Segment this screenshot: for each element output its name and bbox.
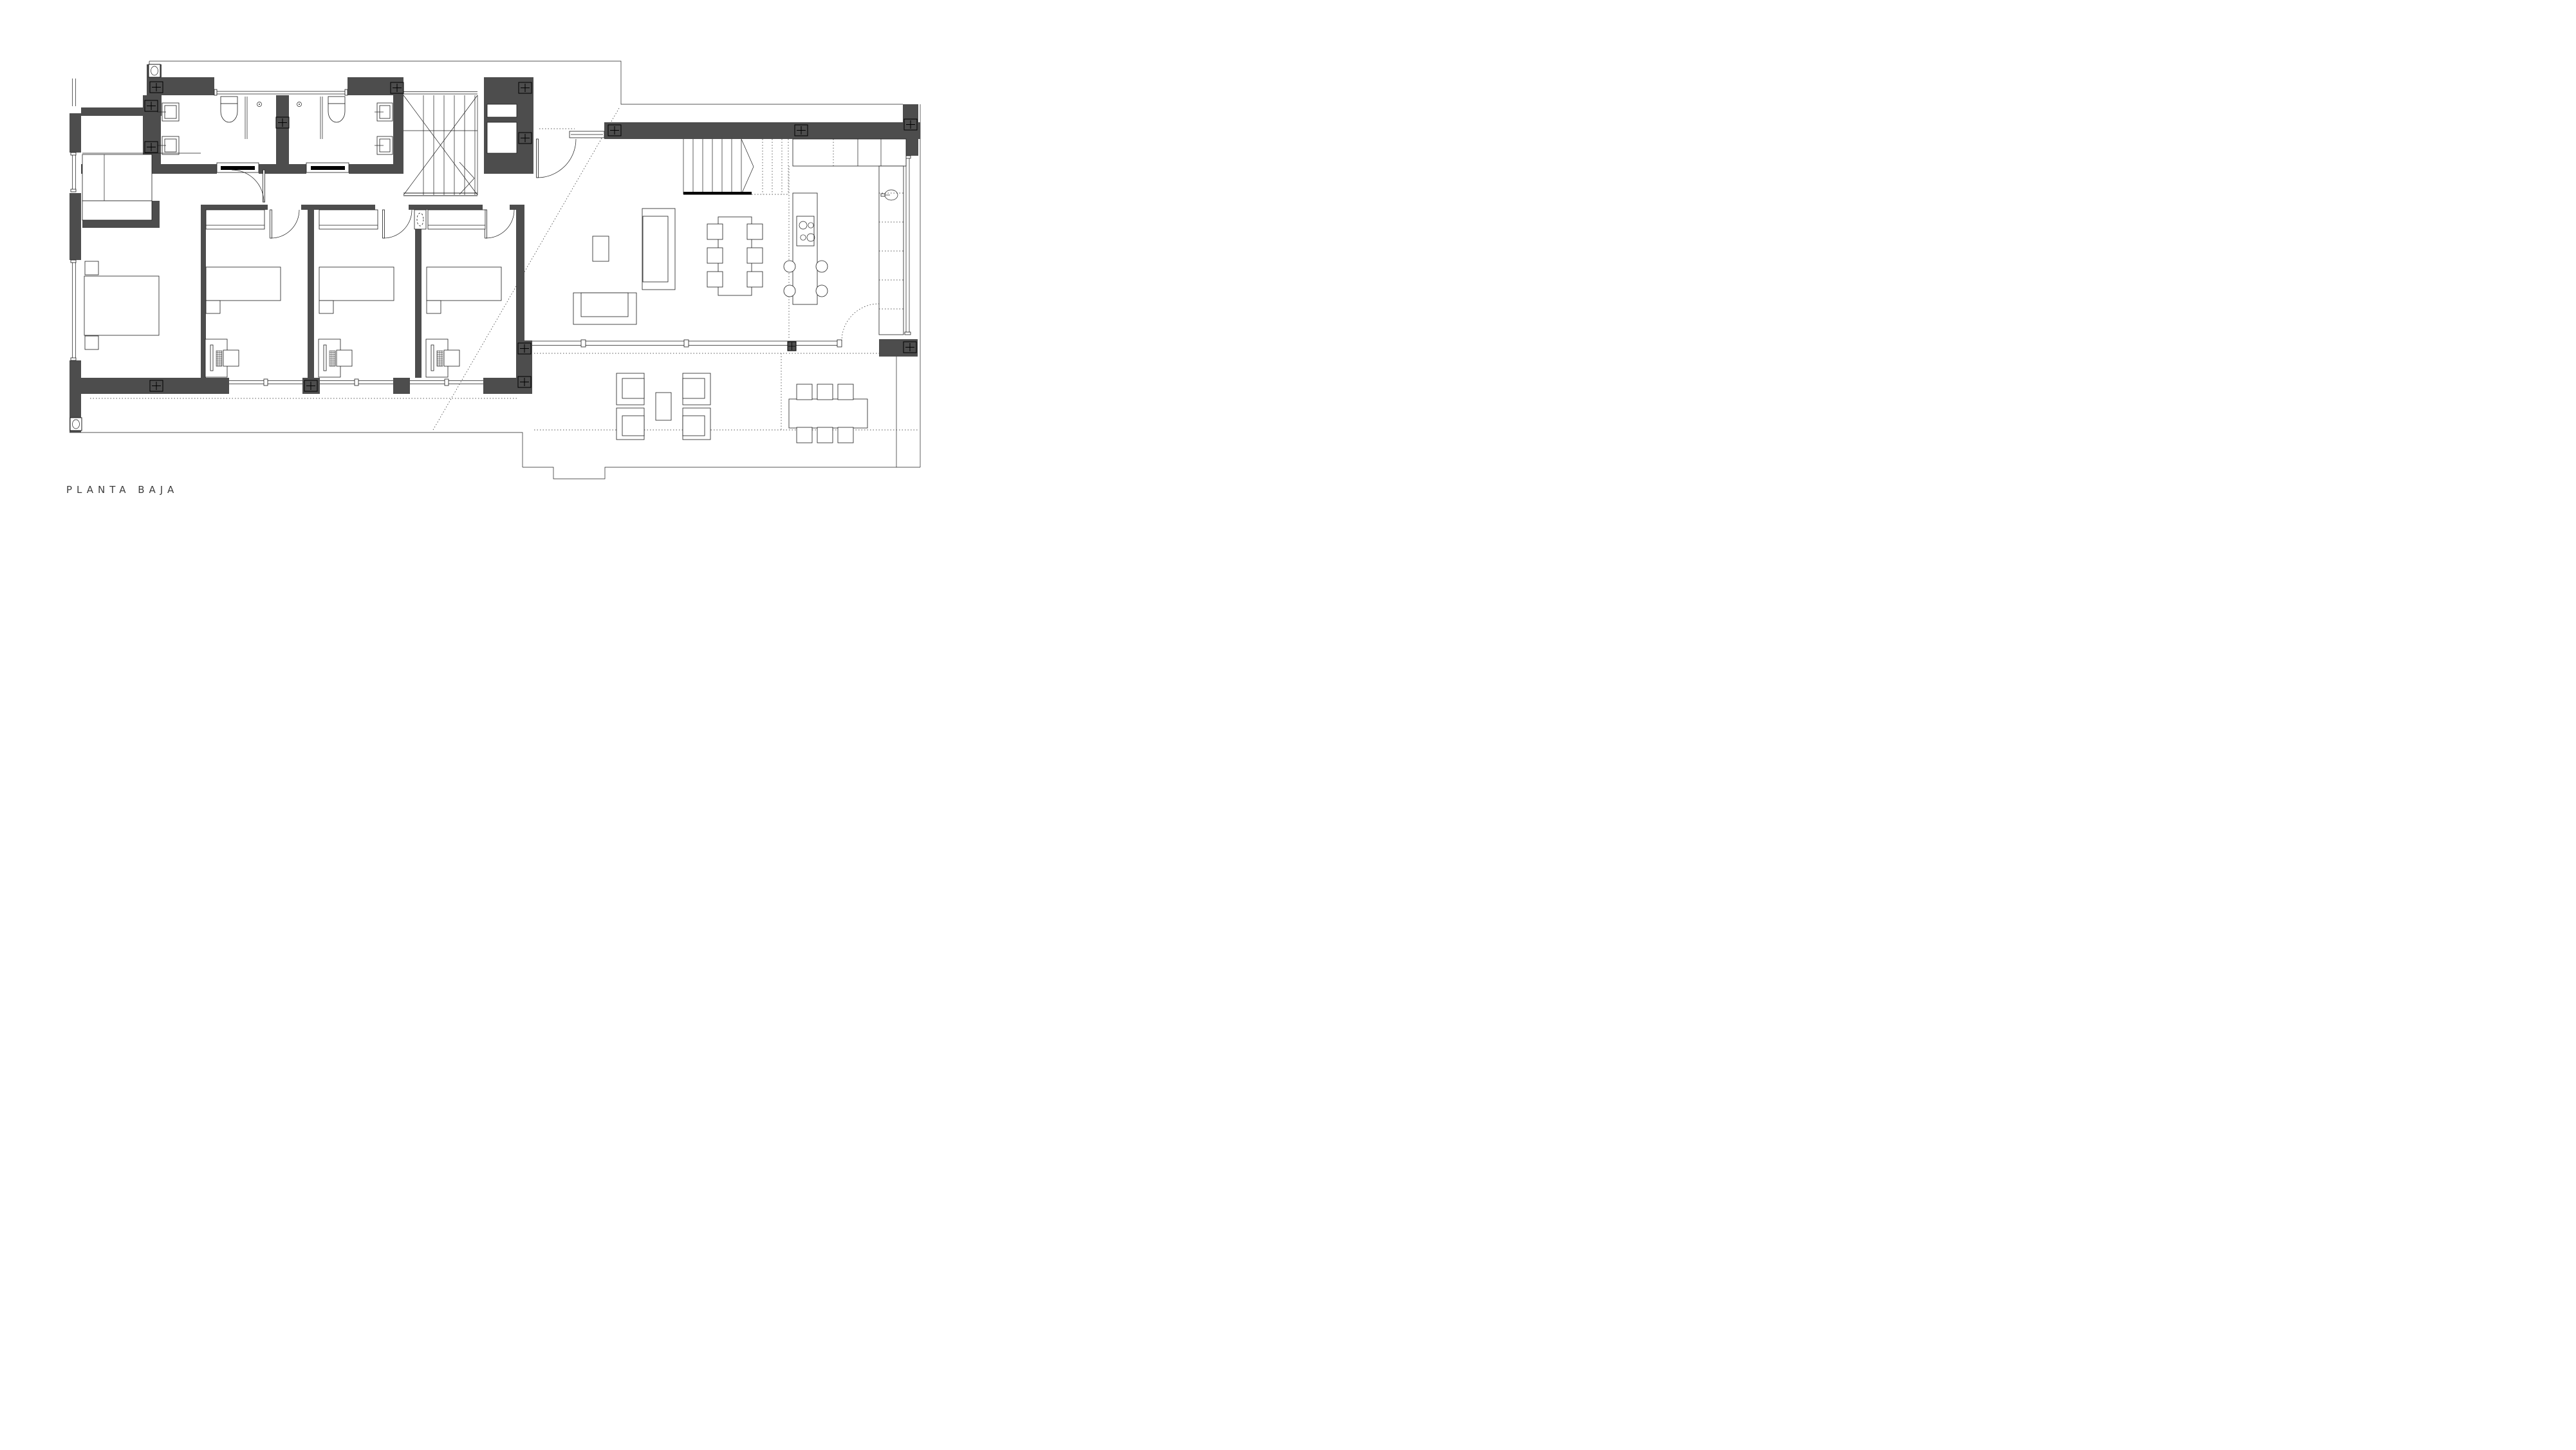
entry-sidelight — [570, 131, 604, 138]
bedroom-2-door — [383, 210, 412, 238]
washbasin — [375, 136, 393, 154]
armchair — [616, 373, 644, 405]
master-suite — [82, 153, 201, 349]
bedroom-3-door — [485, 210, 515, 238]
master-window-south — [71, 260, 76, 360]
wardrobe — [428, 210, 485, 229]
walk-in-closet — [82, 201, 152, 220]
nightstand — [206, 301, 220, 313]
bedroom-1-window — [229, 379, 302, 386]
armchair — [616, 408, 644, 440]
shower-head — [257, 102, 262, 107]
bedroom-2-window — [320, 379, 393, 386]
column-marker-icon — [150, 82, 163, 93]
central-staircase — [403, 95, 477, 196]
bathroom-2 — [297, 97, 393, 154]
desk-chair — [444, 350, 459, 366]
lower-staircase — [683, 139, 788, 195]
hob — [797, 216, 815, 246]
floor-plan-page: PLANTA BAJA — [0, 0, 1009, 568]
toilet — [328, 97, 345, 122]
column-marker-icon — [518, 376, 531, 387]
column-marker-icon — [519, 82, 532, 93]
column-marker-icon — [903, 342, 916, 353]
column-marker-icon — [145, 100, 158, 111]
shower-head — [297, 102, 302, 107]
light-marker-icon — [70, 418, 82, 431]
bed — [206, 267, 281, 301]
sofa-vertical — [642, 209, 675, 290]
column-marker-icon — [391, 82, 403, 93]
shower-screen — [320, 97, 322, 139]
column-marker-icon — [304, 380, 317, 391]
bedroom-3-window — [410, 379, 483, 386]
armchair — [683, 373, 710, 405]
desk-chair — [223, 350, 239, 366]
column-marker-icon — [518, 343, 531, 354]
bed — [319, 267, 394, 301]
laundry-window — [73, 79, 76, 106]
stair-top-window — [403, 92, 477, 95]
column-marker-icon — [519, 133, 532, 144]
nightstand — [85, 336, 98, 349]
kitchen — [784, 139, 906, 335]
wardrobe — [319, 210, 378, 229]
bathroom-2-sliding-door — [306, 163, 349, 172]
nightstand — [319, 301, 333, 313]
armchair — [683, 408, 710, 440]
column-marker-icon — [608, 125, 621, 136]
nightstand — [85, 261, 98, 275]
floor-plan-drawing — [0, 0, 1009, 568]
dining-area — [707, 217, 763, 295]
kitchen-island — [784, 193, 828, 304]
coffee-table — [593, 236, 609, 261]
kitchen-terrace-door — [842, 304, 879, 341]
desk-chair — [337, 350, 352, 366]
entry-wall-niches — [487, 104, 517, 153]
sofa-horizontal — [573, 293, 636, 324]
washbasin — [375, 103, 393, 121]
floor-drain-grid — [788, 342, 796, 351]
corridor-master-door — [232, 170, 265, 202]
master-bed — [84, 276, 159, 335]
light-marker-icon — [149, 64, 160, 77]
column-marker-icon — [795, 125, 808, 136]
column-marker-icon — [150, 380, 163, 391]
terrace-dining — [789, 384, 867, 443]
dressing-wardrobe — [82, 154, 152, 201]
column-marker-icon — [904, 119, 917, 130]
kitchen-counter-east — [879, 166, 903, 335]
doors — [217, 139, 879, 341]
shower-screen — [245, 97, 247, 139]
bathroom-1 — [157, 97, 262, 154]
terrace-lounge — [616, 373, 710, 440]
toilet — [221, 97, 237, 122]
nightstand — [427, 301, 441, 313]
bedroom-3 — [414, 210, 501, 377]
side-table — [656, 393, 671, 420]
column-marker-icon — [276, 117, 289, 128]
bathroom-top-window — [214, 89, 347, 95]
kitchen-east-window — [905, 156, 911, 335]
floor-plan-title: PLANTA BAJA — [66, 484, 178, 496]
bedroom-1-door — [270, 210, 300, 238]
bathroom-1-sliding-door — [217, 163, 259, 172]
bedroom-1 — [205, 210, 281, 377]
kitchen-counter-north — [793, 139, 906, 166]
bed — [427, 267, 501, 301]
water-heater-niche — [414, 210, 426, 229]
column-marker-icon — [145, 142, 158, 153]
wardrobe — [206, 210, 264, 229]
entry-door — [537, 139, 577, 178]
master-window-north — [71, 153, 76, 192]
